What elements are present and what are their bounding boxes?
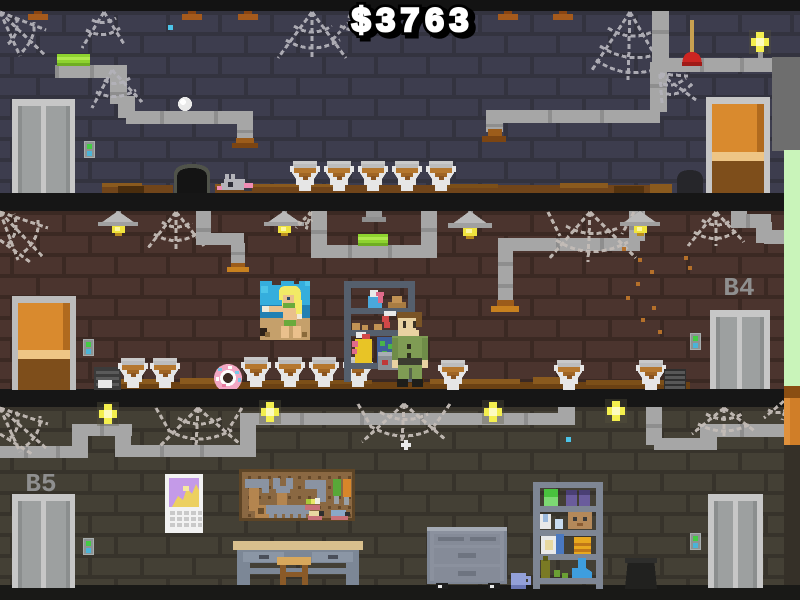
svg-text:$3763: $3763 <box>351 4 473 42</box>
svg-text:B4: B4 <box>723 273 754 303</box>
